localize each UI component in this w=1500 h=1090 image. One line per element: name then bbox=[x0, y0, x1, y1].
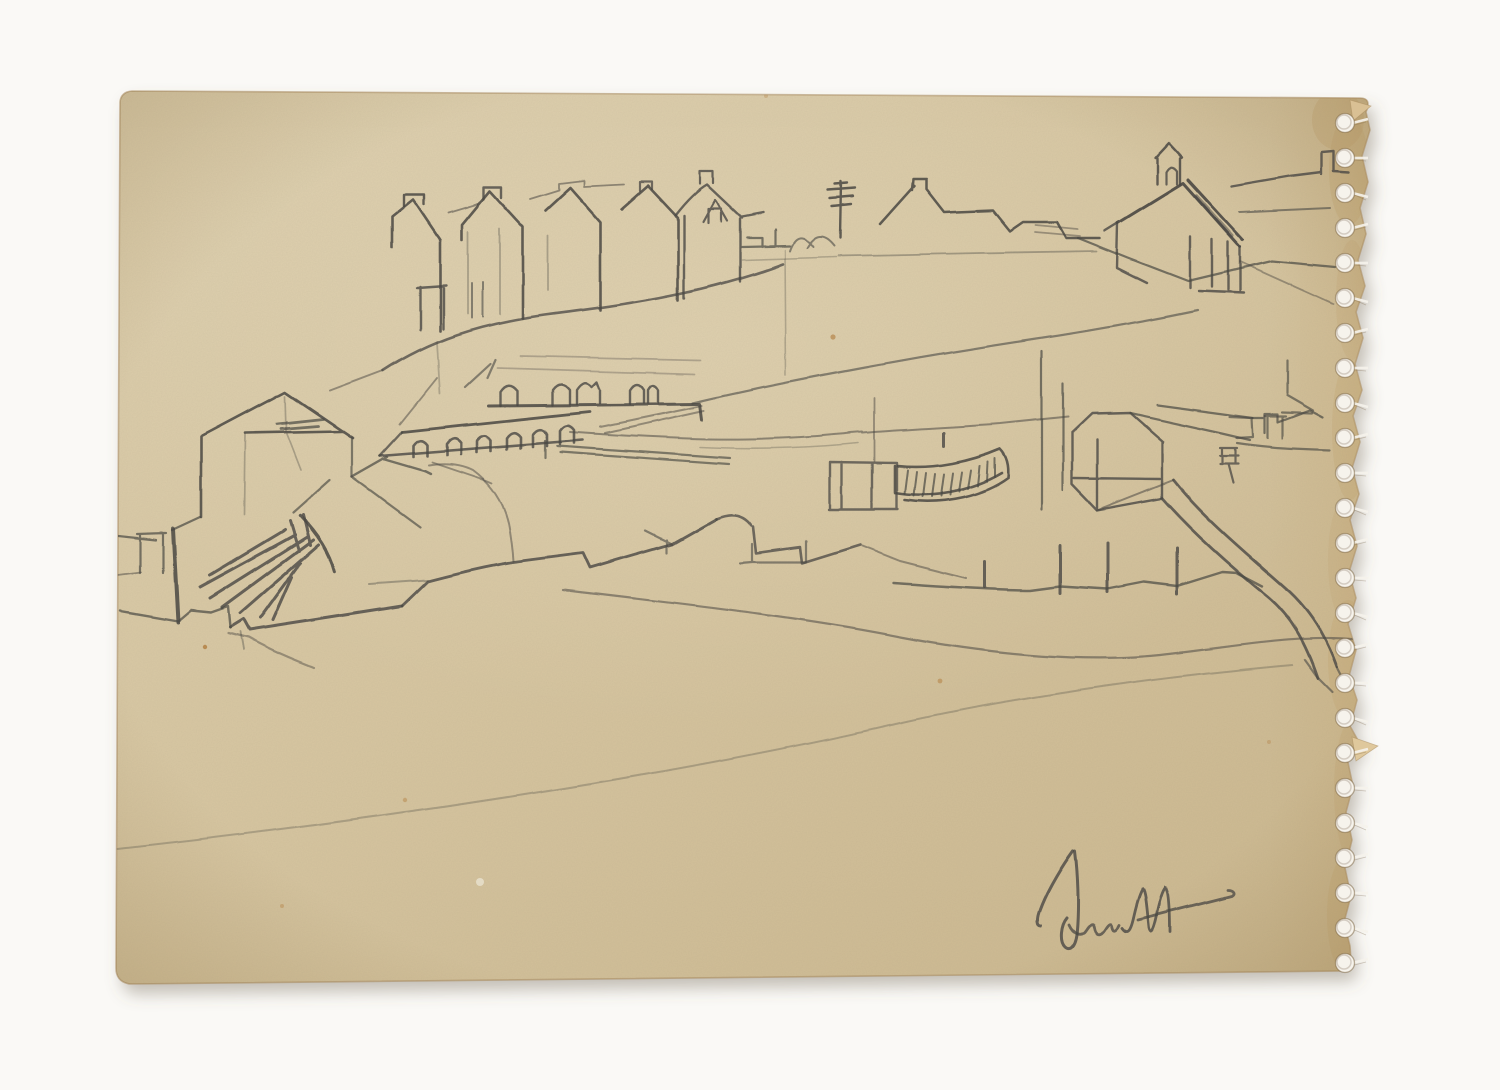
paper-surface bbox=[116, 80, 1388, 1000]
sketch-scan bbox=[0, 0, 1500, 1090]
paper-sheet bbox=[116, 80, 1388, 1000]
scanned-sketchbook-page: Pencil sketch of a coastal hillside vill… bbox=[0, 0, 1500, 1090]
